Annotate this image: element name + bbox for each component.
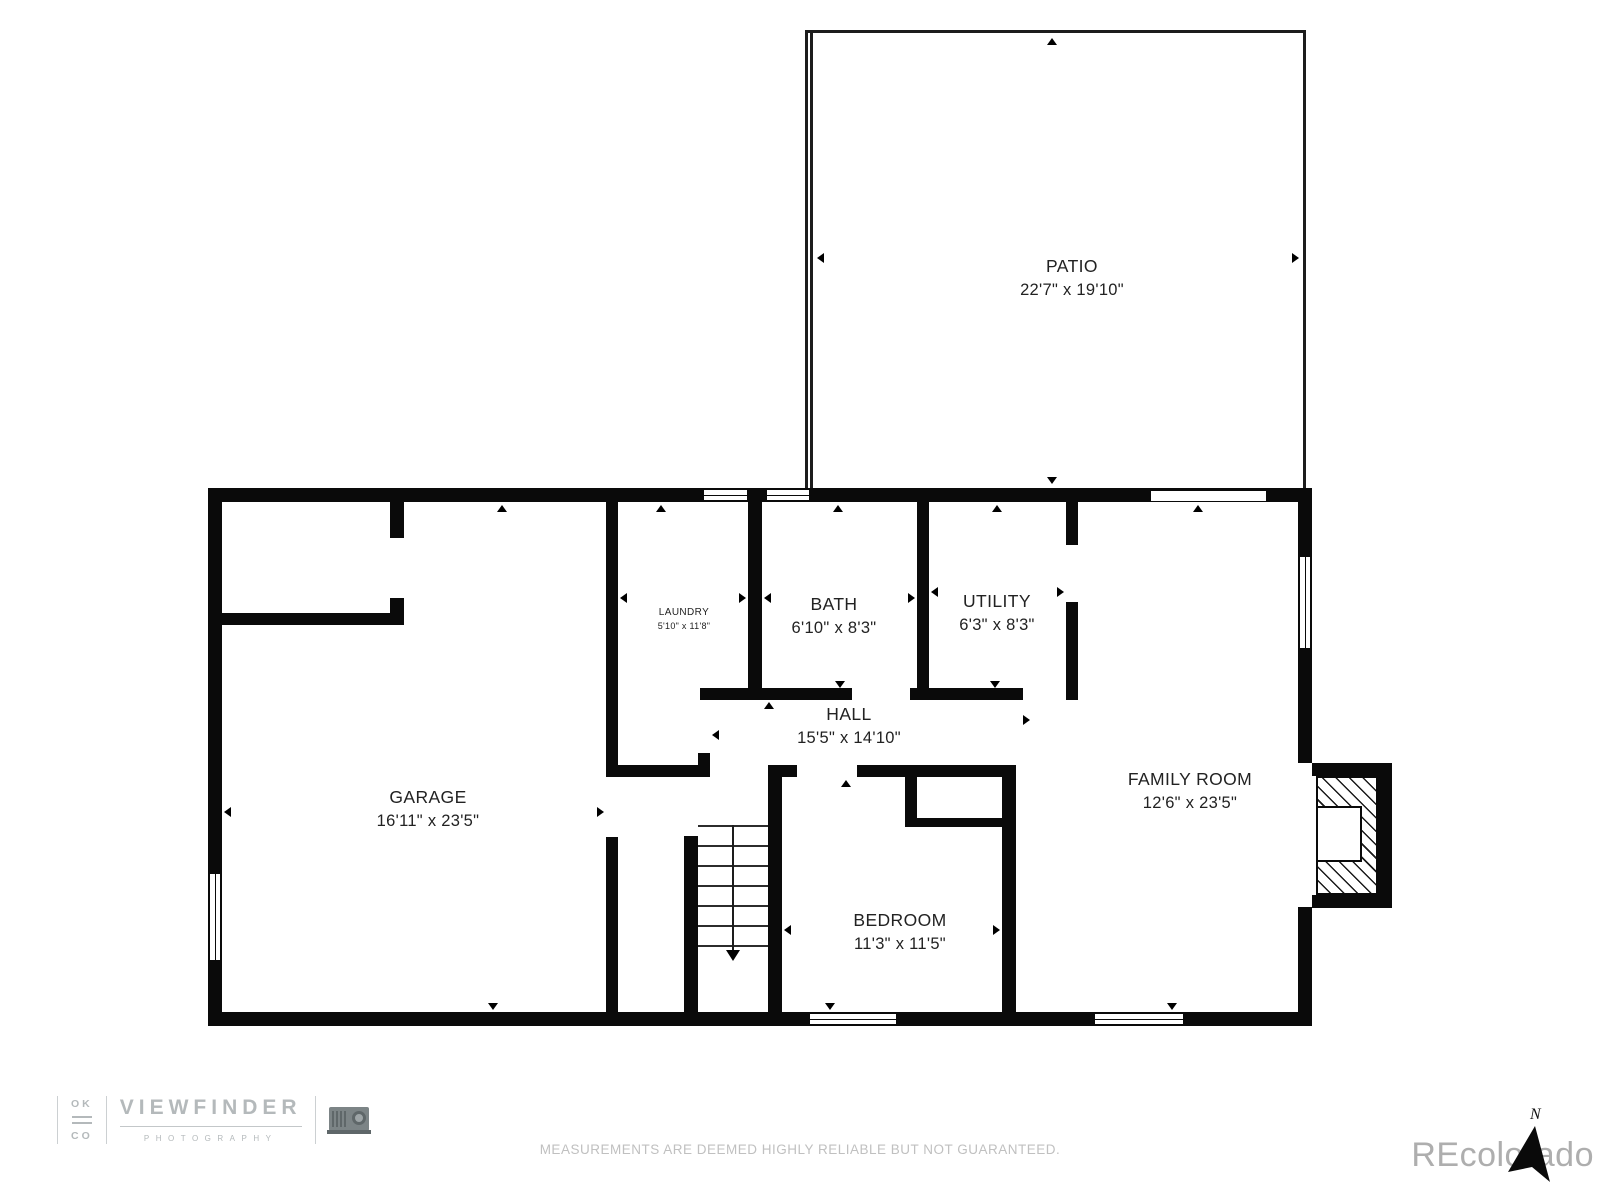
dimension-arrow — [817, 253, 824, 263]
room-label-hall: HALL 15'5" x 14'10" — [689, 704, 1009, 748]
patio-outline-top — [805, 30, 1306, 33]
dimension-arrow — [656, 505, 666, 512]
room-label-utility: UTILITY 6'3" x 8'3" — [837, 591, 1157, 635]
stair-down-arrow-icon — [726, 950, 740, 961]
wall-segment — [749, 488, 765, 502]
fireplace-wall — [1312, 895, 1392, 908]
window — [765, 488, 811, 502]
wall-segment — [700, 688, 852, 700]
room-dimensions: 11'3" x 11'5" — [740, 934, 1060, 954]
logo-title: VIEWFINDER — [120, 1097, 302, 1119]
wall-segment — [208, 962, 222, 1026]
logo-divider — [106, 1096, 107, 1144]
wall-segment — [698, 753, 710, 777]
logo-rule — [120, 1126, 302, 1127]
wall-segment — [390, 502, 404, 538]
patio-outline-left-2 — [810, 30, 813, 502]
logo-okco-bars — [72, 1116, 92, 1124]
dimension-arrow — [825, 1003, 835, 1010]
wall-segment — [768, 765, 782, 1012]
logo-divider — [315, 1096, 316, 1144]
room-name: BEDROOM — [740, 910, 1060, 930]
dimension-arrow — [835, 681, 845, 688]
dimension-arrow — [833, 505, 843, 512]
dimension-arrow — [992, 505, 1002, 512]
patio-door — [1151, 488, 1266, 502]
room-dimensions: 12'6" x 23'5" — [1030, 793, 1350, 813]
room-dimensions: 6'3" x 8'3" — [837, 615, 1157, 635]
wall-segment — [1002, 765, 1016, 1012]
north-arrow-icon — [1468, 1088, 1558, 1188]
fireplace-wall — [1378, 763, 1392, 908]
logo-okco-bottom: CO — [71, 1130, 93, 1142]
stairs-wall — [684, 836, 698, 1012]
wall-segment — [606, 837, 618, 1012]
wall-segment — [606, 765, 710, 777]
wall-segment — [208, 1012, 808, 1026]
room-label-patio: PATIO 22'7" x 19'10" — [912, 256, 1232, 300]
wall-segment — [606, 502, 618, 765]
wall-segment — [910, 688, 1023, 700]
wall-segment — [208, 488, 222, 872]
wall-segment — [768, 765, 797, 777]
stair-arrow-stem — [732, 825, 734, 951]
room-name: FAMILY ROOM — [1030, 769, 1350, 789]
window — [1093, 1012, 1185, 1026]
logo-wordmark: VIEWFINDER PHOTOGRAPHY — [120, 1096, 302, 1144]
wall-segment — [208, 488, 702, 502]
dimension-arrow — [1047, 38, 1057, 45]
room-label-family-room: FAMILY ROOM 12'6" x 23'5" — [1030, 769, 1350, 813]
dimension-arrow — [841, 780, 851, 787]
patio-outline-left-1 — [805, 30, 808, 502]
room-name: HALL — [689, 704, 1009, 724]
wall-segment — [857, 765, 1016, 777]
wall-segment — [1298, 650, 1312, 763]
fireplace-firebox — [1316, 806, 1362, 862]
wall-segment — [222, 613, 404, 625]
dimension-arrow — [597, 807, 604, 817]
window — [702, 488, 749, 502]
dimension-arrow — [488, 1003, 498, 1010]
window — [208, 872, 222, 962]
window — [808, 1012, 898, 1026]
dimension-arrow — [224, 807, 231, 817]
logo-divider — [57, 1096, 58, 1144]
dimension-arrow — [1023, 715, 1030, 725]
dimension-arrow — [990, 681, 1000, 688]
patio-outline-right — [1303, 30, 1306, 488]
compass-north: N — [1468, 1088, 1558, 1188]
wall-segment — [1066, 502, 1078, 545]
room-label-bedroom: BEDROOM 11'3" x 11'5" — [740, 910, 1060, 954]
room-dimensions: 22'7" x 19'10" — [912, 280, 1232, 300]
dimension-arrow — [620, 593, 627, 603]
closet-wall — [905, 777, 917, 827]
dimension-arrow — [497, 505, 507, 512]
dimension-arrow — [1167, 1003, 1177, 1010]
disclaimer-text: MEASUREMENTS ARE DEEMED HIGHLY RELIABLE … — [0, 1142, 1600, 1157]
floor-plan: PATIO 22'7" x 19'10" GARAGE 16'11" x 23'… — [0, 0, 1600, 1200]
wall-segment — [898, 1012, 1093, 1026]
room-name: PATIO — [912, 256, 1232, 276]
viewfinder-logo: OK CO VIEWFINDER PHOTOGRAPHY — [44, 1096, 369, 1144]
camera-icon — [329, 1103, 369, 1137]
room-dimensions: 15'5" x 14'10" — [689, 728, 1009, 748]
room-label-garage: GARAGE 16'11" x 23'5" — [268, 787, 588, 831]
dimension-arrow — [1292, 253, 1299, 263]
dimension-arrow — [1193, 505, 1203, 512]
compass-label: N — [1530, 1106, 1541, 1124]
closet-wall — [917, 818, 1009, 827]
room-name: GARAGE — [268, 787, 588, 807]
logo-okco-mark: OK CO — [71, 1096, 93, 1144]
wall-segment — [1185, 1012, 1312, 1026]
dimension-arrow — [1047, 477, 1057, 484]
room-name: UTILITY — [837, 591, 1157, 611]
wall-segment — [1298, 488, 1312, 555]
window — [1298, 555, 1312, 650]
logo-okco-top: OK — [71, 1098, 93, 1110]
wall-segment — [1298, 907, 1312, 1026]
room-dimensions: 16'11" x 23'5" — [268, 811, 588, 831]
wall-segment — [811, 488, 1151, 502]
